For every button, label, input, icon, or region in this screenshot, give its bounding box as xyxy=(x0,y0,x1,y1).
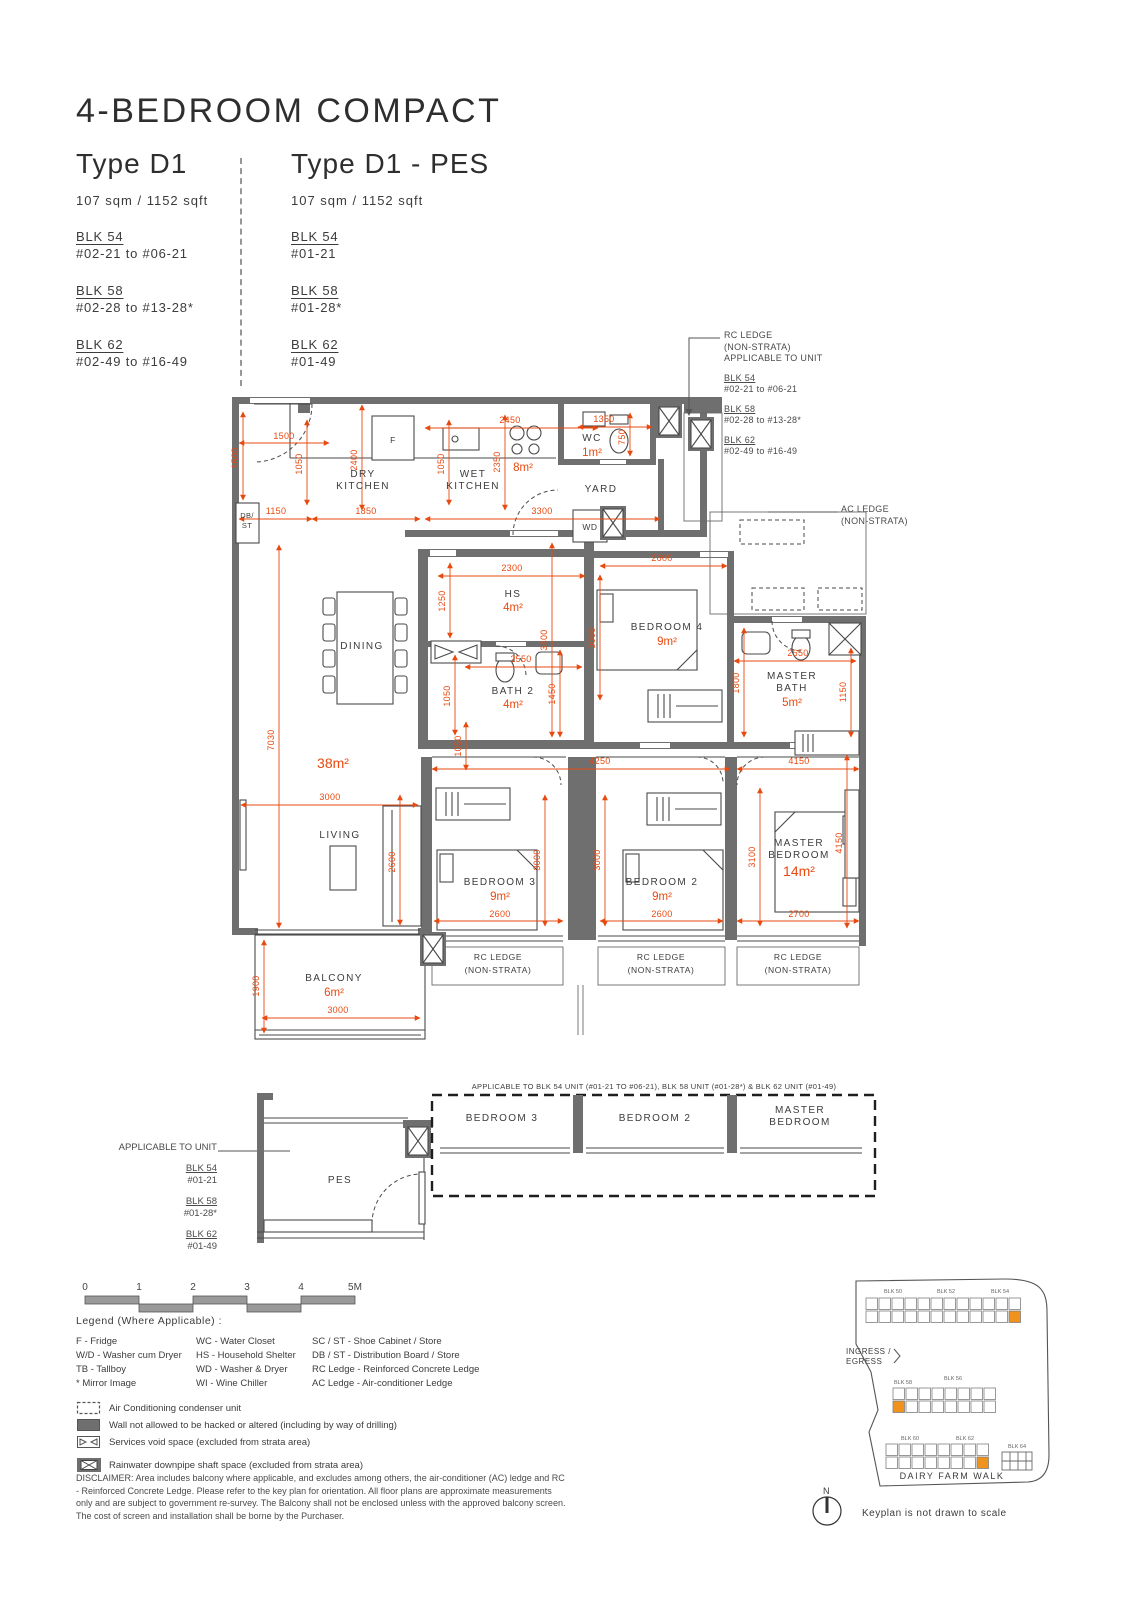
keyplan-unit xyxy=(957,1311,969,1323)
dimension-label: 3400 xyxy=(539,629,549,650)
scale-tick: 3 xyxy=(244,1282,250,1293)
dimension-label: 1900 xyxy=(251,975,261,996)
services-void xyxy=(431,641,481,663)
keyplan-unit xyxy=(971,1388,983,1400)
plan-label: BEDROOM 4 xyxy=(631,622,704,633)
plan-label: BEDROOM 2 xyxy=(619,1113,692,1124)
keyplan-unit xyxy=(957,1298,969,1310)
dimension-label: 3000 xyxy=(532,849,542,870)
dimension-label: 1050 xyxy=(453,735,463,756)
plan-label: BEDROOM xyxy=(769,1117,830,1128)
keyplan: BLK 50BLK 52BLK 54BLK 58BLK 56BLK 60BLK … xyxy=(813,1279,1049,1525)
master-bath-sink xyxy=(742,632,770,654)
dimension-label: 1150 xyxy=(266,506,287,516)
plan-label: 5m² xyxy=(782,697,802,709)
plan-label: 8m² xyxy=(513,462,533,474)
plan-label: INGRESS / xyxy=(846,1347,891,1356)
plan-label: BLK 64 xyxy=(1008,1444,1026,1450)
keyplan-unit xyxy=(996,1311,1008,1323)
plan-label: BATH xyxy=(776,683,808,694)
legend-symbol-label: Rainwater downpipe shaft space (excluded… xyxy=(109,1460,363,1471)
plan-label: 6m² xyxy=(324,987,344,999)
keyplan-unit xyxy=(866,1311,878,1323)
legend-column-2: WC - Water Closet HS - Household Shelter… xyxy=(196,1335,312,1391)
legend-symbol-label: Services void space (excluded from strat… xyxy=(109,1437,310,1448)
keyplan-unit xyxy=(892,1298,904,1310)
legend-item: WD - Washer & Dryer xyxy=(196,1363,312,1377)
plan-label: DINING xyxy=(340,641,383,652)
keyplan-unit xyxy=(918,1311,930,1323)
floorplan-page: { "header": { "title": "4-BEDROOM COMPAC… xyxy=(0,0,1130,1600)
plan-label: 9m² xyxy=(652,891,672,903)
plan-label: BLK 58 xyxy=(894,1380,912,1386)
bath2-sink xyxy=(536,652,562,674)
dimension-label: 4150 xyxy=(834,832,844,853)
dimension-label: 2400 xyxy=(349,449,359,470)
dimension-label: 4150 xyxy=(788,756,809,766)
plan-label: MASTER xyxy=(767,671,817,682)
keyplan-unit xyxy=(983,1311,995,1323)
keyplan-unit xyxy=(912,1444,924,1456)
legend-item: HS - Household Shelter xyxy=(196,1349,312,1363)
keyplan-unit xyxy=(925,1444,937,1456)
plan-label: BLK 56 xyxy=(944,1376,962,1382)
keyplan-unit xyxy=(893,1388,905,1400)
bed-bedroom3 xyxy=(437,850,537,930)
legend-item: TB - Tallboy xyxy=(76,1363,196,1377)
plan-label: DB/ xyxy=(240,511,254,520)
legend-symbol-label: Wall not allowed to be hacked or altered… xyxy=(109,1420,397,1431)
plan-label: BLK 52 xyxy=(937,1289,955,1295)
keyplan-unit xyxy=(925,1457,937,1469)
legend-symbol-label: Air Conditioning condenser unit xyxy=(109,1403,241,1414)
keyplan-unit xyxy=(905,1298,917,1310)
keyplan-unit xyxy=(899,1457,911,1469)
dimension-label: 1050 xyxy=(436,453,446,474)
legend-item: WC - Water Closet xyxy=(196,1335,312,1349)
dimension-label: 3000 xyxy=(587,627,597,648)
keyplan-unit xyxy=(945,1401,957,1413)
plan-label: 14m² xyxy=(783,863,815,879)
legend-symbols: Air Conditioning condenser unit Wall not… xyxy=(76,1401,576,1473)
dimension-label: 1050 xyxy=(442,685,452,706)
keyplan-unit xyxy=(905,1311,917,1323)
plan-label: 38m² xyxy=(317,755,349,771)
dimension-label: 2600 xyxy=(387,851,397,872)
plan-label: (NON-STRATA) xyxy=(765,965,832,975)
dimension-label: 1050 xyxy=(294,453,304,474)
dimension-label: 1150 xyxy=(838,682,848,703)
wardrobe-bedroom4 xyxy=(648,690,722,722)
plan-label: 4m² xyxy=(503,699,523,711)
legend-item: * Mirror Image xyxy=(76,1377,196,1391)
dimension-label: 3000 xyxy=(327,1005,348,1015)
legend-column-1: F - Fridge W/D - Washer cum Dryer TB - T… xyxy=(76,1335,196,1391)
keyplan-unit xyxy=(931,1298,943,1310)
plan-label: Keyplan is not drawn to scale xyxy=(862,1508,1007,1519)
dimension-label: 4250 xyxy=(589,756,610,766)
plan-label: (NON-STRATA) xyxy=(628,965,695,975)
ac-condenser-symbol-icon xyxy=(76,1401,102,1415)
plan-label: BEDROOM 2 xyxy=(626,877,699,888)
dimension-label: 3300 xyxy=(531,506,552,516)
north-arrow-icon xyxy=(813,1497,841,1525)
keyplan-unit xyxy=(983,1298,995,1310)
plan-label: RC LEDGE xyxy=(637,952,685,962)
keyplan-unit xyxy=(971,1401,983,1413)
plan-label: 4m² xyxy=(503,602,523,614)
keyplan-unit xyxy=(886,1444,898,1456)
dimension-label: 2550 xyxy=(510,654,531,664)
dimension-label: 2700 xyxy=(788,909,809,919)
plan-label: WD xyxy=(582,522,597,532)
dimension-label: 1350 xyxy=(593,414,614,424)
plan-label: DAIRY FARM WALK xyxy=(900,1471,1005,1481)
legend: Legend (Where Applicable) : F - Fridge W… xyxy=(76,1315,576,1473)
keyplan-unit xyxy=(958,1388,970,1400)
wardrobe-bedroom3 xyxy=(436,788,510,820)
dimension-label: 1800 xyxy=(731,672,741,693)
rainwater-downpipe-symbol-icon xyxy=(76,1457,102,1473)
keyplan-unit xyxy=(944,1298,956,1310)
plan-label: APPLICABLE TO BLK 54 UNIT (#01-21 TO #06… xyxy=(472,1082,837,1091)
plan-label: RC LEDGE xyxy=(774,952,822,962)
legend-item: DB / ST - Distribution Board / Store xyxy=(312,1349,512,1363)
plan-label: 9m² xyxy=(657,636,677,648)
keyplan-unit xyxy=(919,1388,931,1400)
keyplan-unit xyxy=(964,1457,976,1469)
dimension-label: 2300 xyxy=(501,563,522,573)
scale-tick: 2 xyxy=(190,1282,196,1293)
plan-label: WC xyxy=(582,433,601,444)
legend-column-3: SC / ST - Shoe Cabinet / Store DB / ST -… xyxy=(312,1335,512,1391)
plan-label: F xyxy=(390,435,396,445)
dimension-label: 2600 xyxy=(489,909,510,919)
scale-bar: 012345M xyxy=(82,1282,362,1312)
keyplan-unit xyxy=(938,1457,950,1469)
legend-item: W/D - Washer cum Dryer xyxy=(76,1349,196,1363)
scale-tick: 4 xyxy=(298,1282,304,1293)
plan-label: ST xyxy=(242,521,252,530)
keyplan-unit xyxy=(1009,1298,1021,1310)
plan-label: RC LEDGE xyxy=(474,952,522,962)
plan-label: EGRESS xyxy=(846,1357,882,1366)
scale-tick: 5M xyxy=(348,1282,362,1293)
legend-item: RC Ledge - Reinforced Concrete Ledge xyxy=(312,1363,512,1377)
keyplan-unit xyxy=(996,1298,1008,1310)
keyplan-unit xyxy=(945,1388,957,1400)
keyplan-unit xyxy=(931,1311,943,1323)
keyplan-unit xyxy=(906,1401,918,1413)
keyplan-unit xyxy=(984,1388,996,1400)
keyplan-unit xyxy=(951,1457,963,1469)
plan-label: BEDROOM 3 xyxy=(464,877,537,888)
keyplan-unit xyxy=(919,1401,931,1413)
keyplan-blocks xyxy=(866,1298,1021,1469)
dimension-label: 1500 xyxy=(273,431,294,441)
keyplan-unit xyxy=(970,1298,982,1310)
coffee-table xyxy=(330,846,356,890)
plan-label: BLK 50 xyxy=(884,1289,902,1295)
dimension-label: 1500 xyxy=(230,447,240,468)
bed-bedroom2 xyxy=(623,850,723,930)
keyplan-unit xyxy=(879,1298,891,1310)
keyplan-unit xyxy=(944,1311,956,1323)
plan-label: KITCHEN xyxy=(336,481,390,492)
plan-label: 9m² xyxy=(490,891,510,903)
plan-label: BLK 54 xyxy=(991,1289,1009,1295)
tv-console xyxy=(240,800,246,870)
plan-label: BALCONY xyxy=(305,973,363,984)
wardrobe-bedroom2 xyxy=(647,793,721,825)
keyplan-unit xyxy=(964,1444,976,1456)
keyplan-highlighted-unit xyxy=(1009,1311,1021,1323)
dimension-label: 1450 xyxy=(547,683,557,704)
wall-symbol-icon xyxy=(76,1418,102,1432)
legend-item: F - Fridge xyxy=(76,1335,196,1349)
plan-label: BATH 2 xyxy=(492,686,535,697)
ingress-arrow-icon xyxy=(894,1349,900,1363)
dimension-label: 1850 xyxy=(355,506,376,516)
keyplan-unit xyxy=(984,1401,996,1413)
plan-label: N xyxy=(823,1486,831,1496)
keyplan-unit xyxy=(932,1388,944,1400)
legend-title: Legend (Where Applicable) : xyxy=(76,1315,576,1327)
plan-label: BEDROOM 3 xyxy=(466,1113,539,1124)
plan-label: MASTER xyxy=(775,1105,825,1116)
plan-label: (NON-STRATA) xyxy=(465,965,532,975)
keyplan-unit xyxy=(899,1444,911,1456)
keyplan-highlighted-unit xyxy=(893,1401,905,1413)
plan-label: BLK 62 xyxy=(956,1436,974,1442)
plan-label: LIVING xyxy=(319,830,360,841)
plan-label: BLK 60 xyxy=(901,1436,919,1442)
keyplan-unit xyxy=(951,1444,963,1456)
disclaimer: DISCLAIMER: Area includes balcony where … xyxy=(76,1472,570,1522)
dimension-label: 2450 xyxy=(499,415,520,425)
keyplan-unit xyxy=(906,1388,918,1400)
keyplan-unit xyxy=(866,1298,878,1310)
dimension-label: 3000 xyxy=(592,849,602,870)
plan-label: MASTER xyxy=(774,838,824,849)
plan-label: BEDROOM xyxy=(768,850,829,861)
keyplan-unit xyxy=(886,1457,898,1469)
plan-label: KITCHEN xyxy=(446,481,500,492)
legend-item: WI - Wine Chiller xyxy=(196,1377,312,1391)
dimension-label: 2650 xyxy=(787,648,808,658)
plan-label: DRY xyxy=(350,469,375,480)
keyplan-highlighted-unit xyxy=(977,1457,989,1469)
dimension-label: 1250 xyxy=(437,590,447,611)
thin-structures xyxy=(255,413,866,1039)
dimension-label: 7030 xyxy=(266,729,276,750)
services-void-symbol-icon xyxy=(76,1435,102,1449)
tallboy-master xyxy=(795,731,859,755)
dimension-label: 3000 xyxy=(319,792,340,802)
dimension-label: 3100 xyxy=(747,846,757,867)
dimension-label: 2350 xyxy=(492,451,502,472)
keyplan-unit xyxy=(918,1298,930,1310)
dimension-label: 750 xyxy=(617,429,627,445)
plan-label: YARD xyxy=(585,484,618,495)
legend-item: SC / ST - Shoe Cabinet / Store xyxy=(312,1335,512,1349)
legend-item: AC Ledge - Air-conditioner Ledge xyxy=(312,1377,512,1391)
keyplan-unit xyxy=(892,1311,904,1323)
plan-annotations: 1500150010502400245010502350135075011501… xyxy=(230,405,859,1186)
plan-label: HS xyxy=(505,589,522,600)
dimension-label: 2600 xyxy=(651,553,672,563)
keyplan-unit xyxy=(938,1444,950,1456)
keyplan-unit xyxy=(879,1311,891,1323)
plan-label: 1m² xyxy=(582,447,602,459)
door-openings xyxy=(250,398,820,748)
keyplan-unit xyxy=(970,1311,982,1323)
keyplan-unit xyxy=(958,1401,970,1413)
scale-tick: 1 xyxy=(136,1282,142,1293)
keyplan-unit xyxy=(977,1444,989,1456)
plan-label: WET xyxy=(460,469,486,480)
keyplan-unit xyxy=(932,1401,944,1413)
dimension-label: 2600 xyxy=(651,909,672,919)
keyplan-unit xyxy=(912,1457,924,1469)
blk64-carpark xyxy=(1002,1452,1032,1470)
scale-tick: 0 xyxy=(82,1282,88,1293)
plan-label: PES xyxy=(328,1175,352,1186)
